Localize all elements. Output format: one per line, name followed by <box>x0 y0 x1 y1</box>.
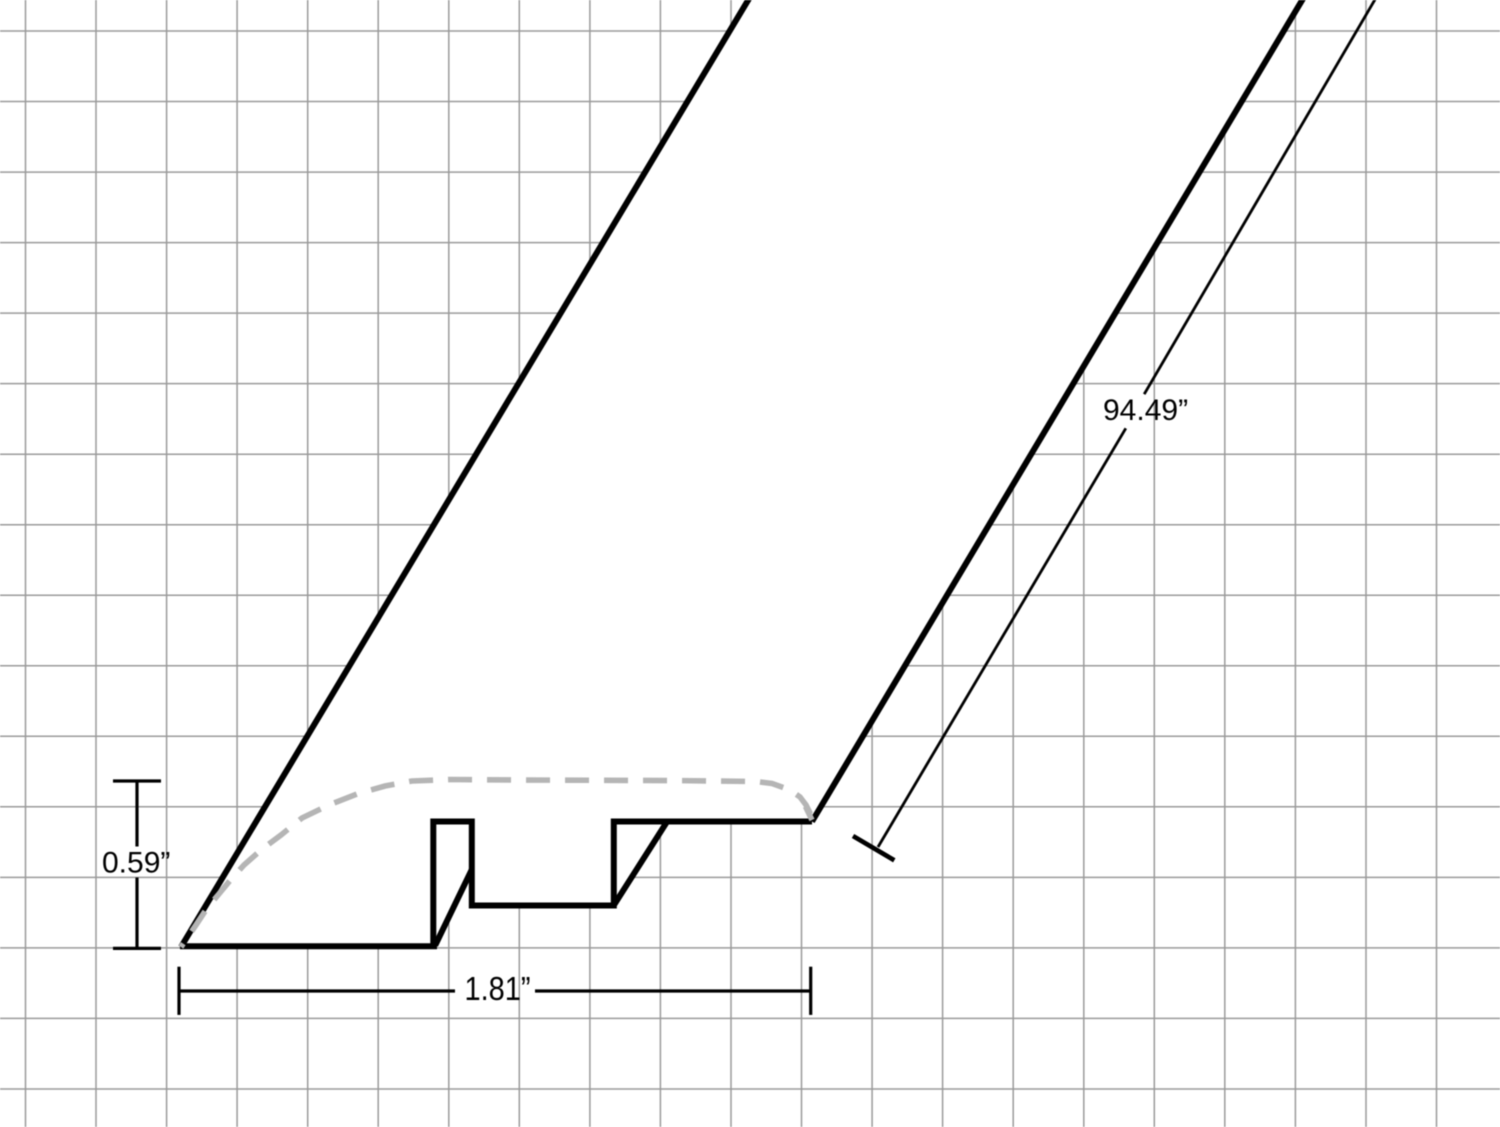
svg-text:94.49”: 94.49” <box>1103 394 1188 427</box>
svg-text:1.81”: 1.81” <box>465 970 531 1007</box>
svg-text:0.59”: 0.59” <box>102 846 170 879</box>
